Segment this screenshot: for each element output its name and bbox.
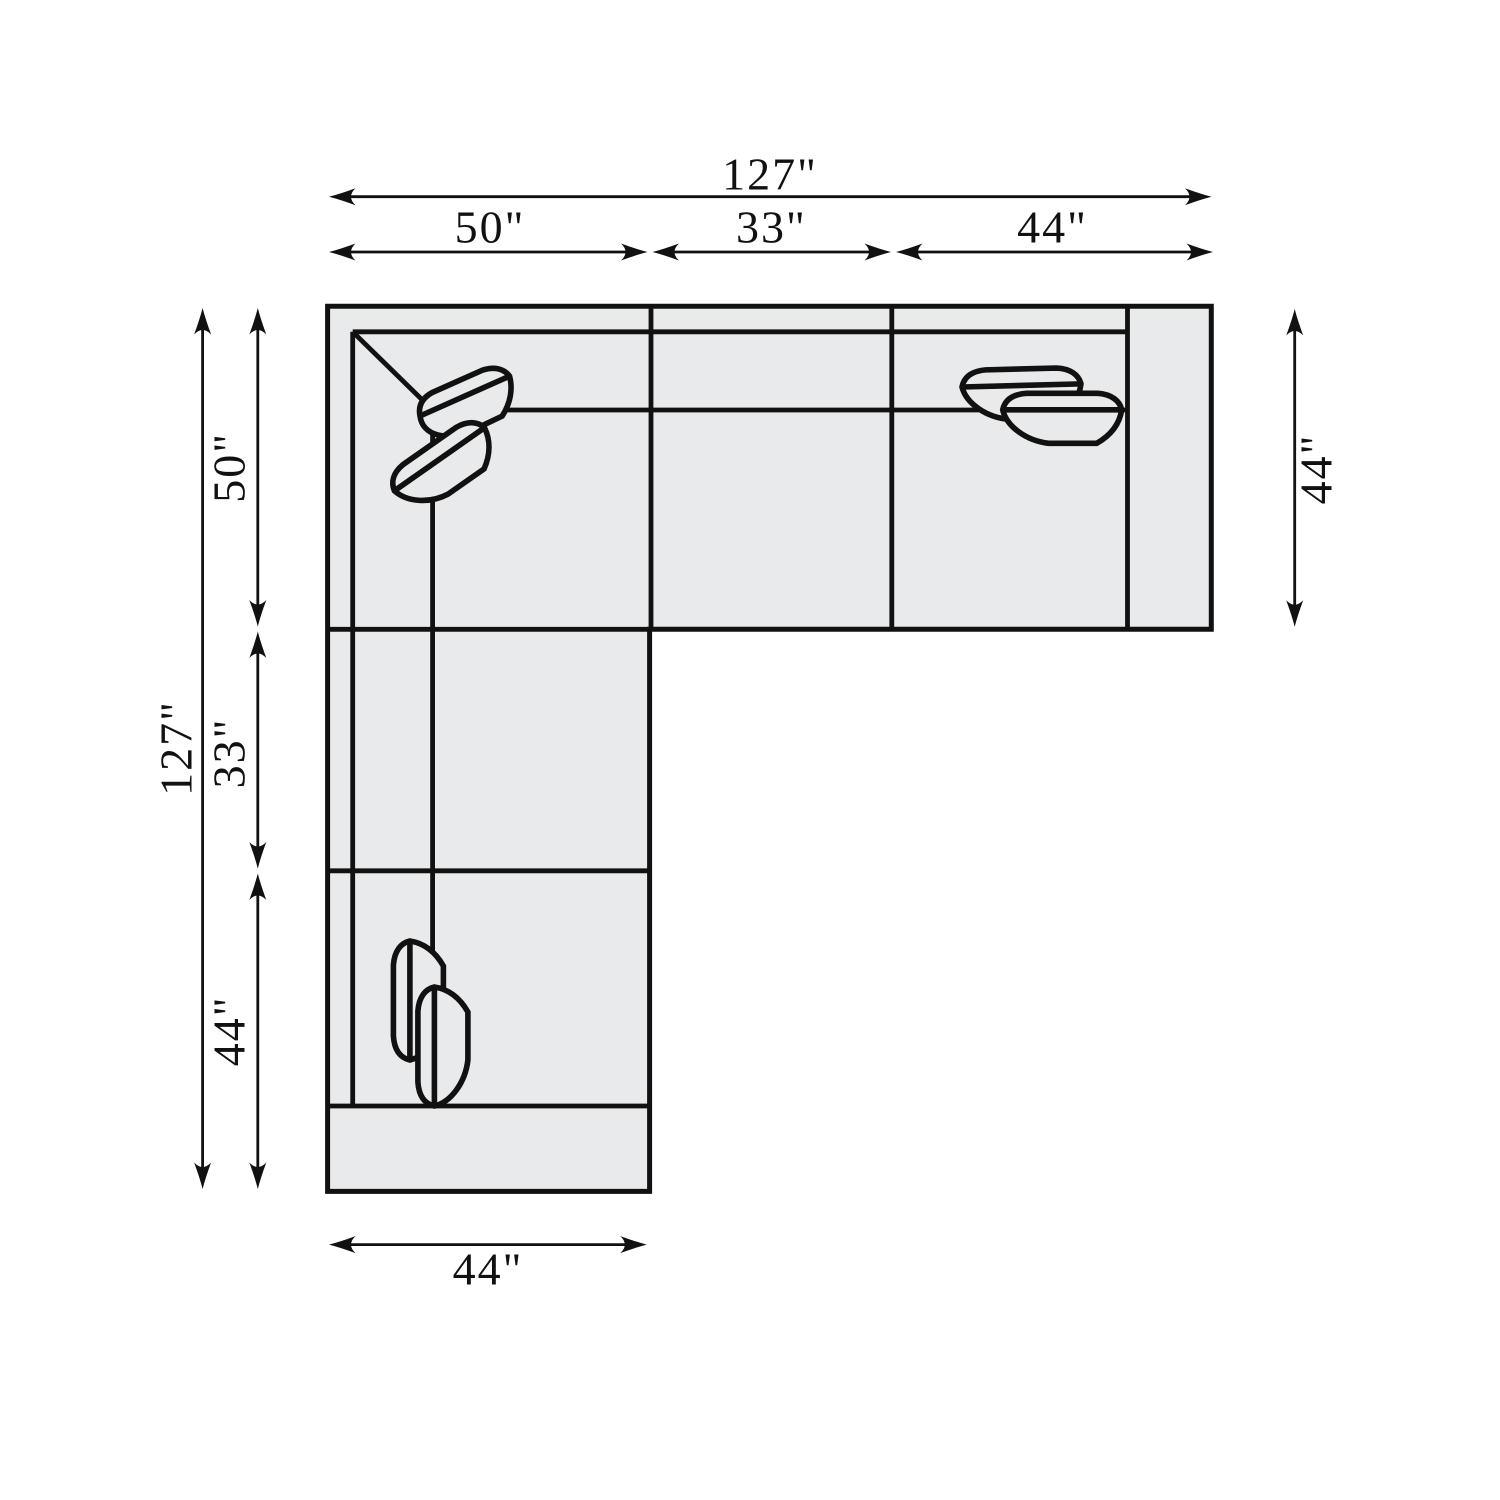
svg-text:44": 44" bbox=[1017, 202, 1088, 253]
svg-text:44": 44" bbox=[453, 1244, 524, 1295]
svg-text:44": 44" bbox=[1291, 434, 1342, 505]
svg-text:50": 50" bbox=[455, 202, 526, 253]
svg-text:127": 127" bbox=[151, 700, 202, 796]
svg-text:44": 44" bbox=[204, 995, 255, 1066]
svg-text:127": 127" bbox=[722, 149, 818, 200]
svg-text:50": 50" bbox=[204, 432, 255, 503]
svg-text:33": 33" bbox=[204, 718, 255, 789]
svg-text:33": 33" bbox=[736, 202, 807, 253]
